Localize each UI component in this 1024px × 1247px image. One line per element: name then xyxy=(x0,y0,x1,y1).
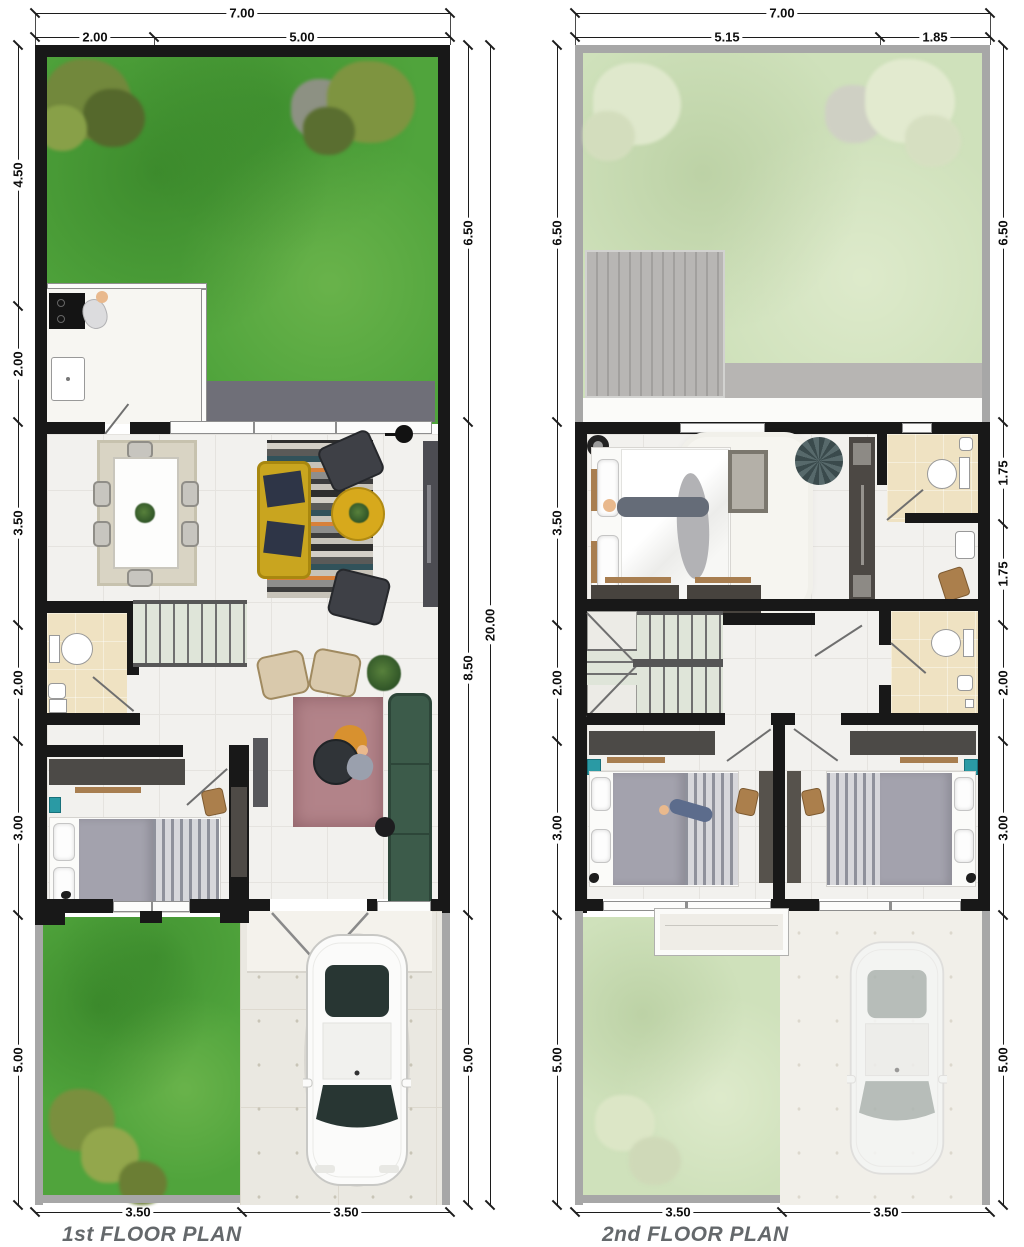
wardrobe xyxy=(850,731,976,755)
car-mirror xyxy=(303,1079,312,1087)
toilet-bowl xyxy=(927,459,957,489)
burner xyxy=(57,299,65,307)
dim-label: 2.00 xyxy=(79,31,110,44)
dim-label: 2.00 xyxy=(997,667,1010,698)
duvet xyxy=(79,819,153,911)
toilet-tank xyxy=(959,457,970,489)
staircase xyxy=(133,600,247,667)
dim-label: 3.50 xyxy=(662,1206,693,1219)
gate-post xyxy=(35,911,65,925)
dining-chair xyxy=(181,521,199,547)
car-headlight xyxy=(379,1165,399,1173)
pillow xyxy=(591,777,611,811)
bench xyxy=(695,577,751,583)
person-body xyxy=(79,296,111,332)
car-rear-window xyxy=(867,970,926,1018)
sink xyxy=(957,675,973,691)
car-antenna xyxy=(355,1071,360,1076)
sofa-seam xyxy=(391,833,429,835)
car-windshield xyxy=(316,1085,398,1128)
boundary-wall xyxy=(575,911,583,1205)
front-lawn-below xyxy=(583,917,780,1195)
wall xyxy=(47,422,105,434)
terrace-edge xyxy=(725,363,982,398)
tray-plant xyxy=(349,503,369,523)
wall-art xyxy=(49,797,61,813)
duvet xyxy=(613,773,685,885)
pillow xyxy=(53,823,75,861)
car-below xyxy=(847,929,947,1187)
car-windshield xyxy=(859,1081,935,1120)
person-head xyxy=(659,805,669,815)
wall xyxy=(35,45,47,913)
floor-plan-2 xyxy=(575,45,990,1205)
sofa-seam xyxy=(391,763,429,765)
dining-chair xyxy=(93,521,111,547)
dim-label: 8.50 xyxy=(462,652,475,683)
dining-chair xyxy=(127,569,153,587)
toilet-tank xyxy=(49,635,60,663)
dim-label: 1.75 xyxy=(997,457,1010,488)
dim-label: 3.50 xyxy=(12,507,25,538)
dim-label: 2.00 xyxy=(12,667,25,698)
person-lying xyxy=(659,797,717,827)
wall xyxy=(877,434,887,485)
bench xyxy=(75,787,141,793)
pillow xyxy=(591,829,611,863)
wardrobe-handle xyxy=(861,485,864,565)
boundary-wall xyxy=(982,45,990,434)
dim-label: 5.00 xyxy=(551,1044,564,1075)
dining-chair xyxy=(93,481,111,507)
sofa-cushion xyxy=(263,471,305,508)
wardrobe-shelves xyxy=(853,575,871,597)
sink-drain xyxy=(66,377,70,381)
boundary-wall xyxy=(575,45,583,434)
wall xyxy=(47,713,140,725)
dim-label: 2.00 xyxy=(551,667,564,698)
wall xyxy=(130,422,170,434)
plan1-title: 1st FLOOR PLAN xyxy=(62,1223,242,1247)
sofa-green xyxy=(388,693,432,913)
person-lying xyxy=(603,493,713,523)
mirror-handle xyxy=(385,433,397,436)
roof-deck xyxy=(585,250,725,398)
bench xyxy=(605,577,671,583)
gate-post xyxy=(140,911,162,923)
boundary-wall xyxy=(982,911,990,1205)
window xyxy=(680,423,765,433)
desk xyxy=(787,771,801,883)
dim-label: 1.75 xyxy=(997,558,1010,589)
bench xyxy=(900,757,958,763)
desk xyxy=(759,771,773,883)
ottoman xyxy=(728,450,768,513)
boundary-wall xyxy=(575,1195,780,1203)
car-mirror xyxy=(939,1076,947,1083)
wall xyxy=(47,745,183,757)
wall-divider xyxy=(773,725,785,899)
dim-label: 5.00 xyxy=(286,31,317,44)
burner xyxy=(57,315,65,323)
dim-label: 4.50 xyxy=(12,159,25,190)
gate-post xyxy=(220,911,249,923)
person-head xyxy=(603,499,616,512)
dim-label: 6.50 xyxy=(997,217,1010,248)
dim-label: 3.00 xyxy=(997,812,1010,843)
duvet xyxy=(880,773,952,885)
dim-label: 3.00 xyxy=(12,812,25,843)
console xyxy=(253,738,268,807)
blanket xyxy=(827,773,880,885)
front-lawn xyxy=(43,917,240,1195)
boundary-wall xyxy=(35,913,43,1205)
wall xyxy=(587,599,978,611)
boundary-wall xyxy=(442,913,450,1205)
wall xyxy=(587,713,725,725)
dim-label: 3.00 xyxy=(551,812,564,843)
plan2-title: 2nd FLOOR PLAN xyxy=(602,1223,789,1247)
car-antenna xyxy=(895,1068,900,1073)
wall xyxy=(905,513,978,523)
stair-rail xyxy=(633,659,723,667)
cooktop xyxy=(49,293,85,329)
car-mirror xyxy=(847,1076,855,1083)
wall xyxy=(575,422,587,913)
wall xyxy=(841,713,978,725)
dim-label: 3.50 xyxy=(122,1206,153,1219)
dim-label: 5.15 xyxy=(711,31,742,44)
car-headlight xyxy=(315,1165,335,1173)
dim-label: 7.00 xyxy=(766,7,797,20)
tree-faded xyxy=(905,115,961,167)
wardrobe xyxy=(589,731,715,755)
dim-label: 5.00 xyxy=(12,1044,25,1075)
terrace xyxy=(197,381,435,422)
dim-label: 3.50 xyxy=(330,1206,361,1219)
kitchen-window xyxy=(201,289,207,422)
dim-label: 1.85 xyxy=(919,31,950,44)
washing-machine xyxy=(49,699,67,713)
person-sitting xyxy=(345,745,377,785)
armchair-beige xyxy=(307,647,363,699)
table-plant xyxy=(135,503,155,523)
kitchen-window xyxy=(47,283,207,289)
pillow xyxy=(954,829,974,863)
dim-label: 5.00 xyxy=(462,1044,475,1075)
wall xyxy=(587,899,603,911)
person-body xyxy=(617,497,709,517)
dim-label: 5.00 xyxy=(997,1044,1010,1075)
bathroom-sink xyxy=(48,683,66,699)
person-body xyxy=(668,797,714,824)
dim-label: 7.00 xyxy=(226,7,257,20)
dim-label: 6.50 xyxy=(462,217,475,248)
window xyxy=(902,423,932,433)
dim-label: 20.00 xyxy=(484,606,497,645)
wall xyxy=(961,899,978,911)
boundary-wall xyxy=(575,45,990,53)
tree-faded xyxy=(583,111,635,161)
floor-plan-1 xyxy=(35,45,450,1205)
bench xyxy=(607,757,665,763)
dim-label: 3.50 xyxy=(551,507,564,538)
vanity-sink xyxy=(955,531,975,559)
stair-winder xyxy=(587,649,637,685)
tree xyxy=(303,107,355,155)
window-mullion xyxy=(253,421,255,434)
wardrobe-shelves xyxy=(853,443,871,465)
balcony-line xyxy=(665,925,778,926)
floor-plan-sheet: 7.00 2.00 5.00 4.50 2.00 3.50 2.00 3.00 … xyxy=(0,0,1024,1247)
dim-label: 2.00 xyxy=(12,348,25,379)
side-table-black xyxy=(375,817,395,837)
person-head xyxy=(96,291,108,303)
wall xyxy=(47,601,135,613)
wall-mirror xyxy=(395,425,413,443)
wall xyxy=(438,45,450,913)
dining-chair xyxy=(181,481,199,507)
balcony xyxy=(655,909,788,955)
door-panel xyxy=(231,787,247,877)
shrub-faded xyxy=(629,1137,681,1185)
wall xyxy=(879,611,891,645)
dim-label: 3.50 xyxy=(870,1206,901,1219)
blanket xyxy=(153,819,219,911)
tv-screen xyxy=(427,485,431,563)
wardrobe xyxy=(49,759,185,785)
sofa-cushion xyxy=(263,521,305,557)
toilet-tank xyxy=(963,629,974,657)
toilet-bowl xyxy=(931,629,961,657)
setback-strip xyxy=(583,398,982,422)
blanket xyxy=(685,773,738,885)
person-body xyxy=(344,751,376,783)
car xyxy=(303,931,411,1189)
person-cooking xyxy=(83,291,113,331)
window-mullion xyxy=(889,901,892,911)
wall xyxy=(35,45,450,57)
car-mirror xyxy=(402,1079,411,1087)
pillow xyxy=(954,777,974,811)
tree xyxy=(83,89,145,147)
dim-label: 6.50 xyxy=(551,217,564,248)
plant xyxy=(367,655,401,691)
boundary-wall xyxy=(35,1195,240,1203)
toilet-bowl xyxy=(61,633,93,665)
car-rear-window xyxy=(325,965,389,1017)
sink xyxy=(959,437,973,451)
wall xyxy=(978,422,990,913)
floor-drain xyxy=(965,699,974,708)
window-mullion xyxy=(335,421,337,434)
wall xyxy=(771,713,795,725)
round-pouf xyxy=(795,437,843,485)
